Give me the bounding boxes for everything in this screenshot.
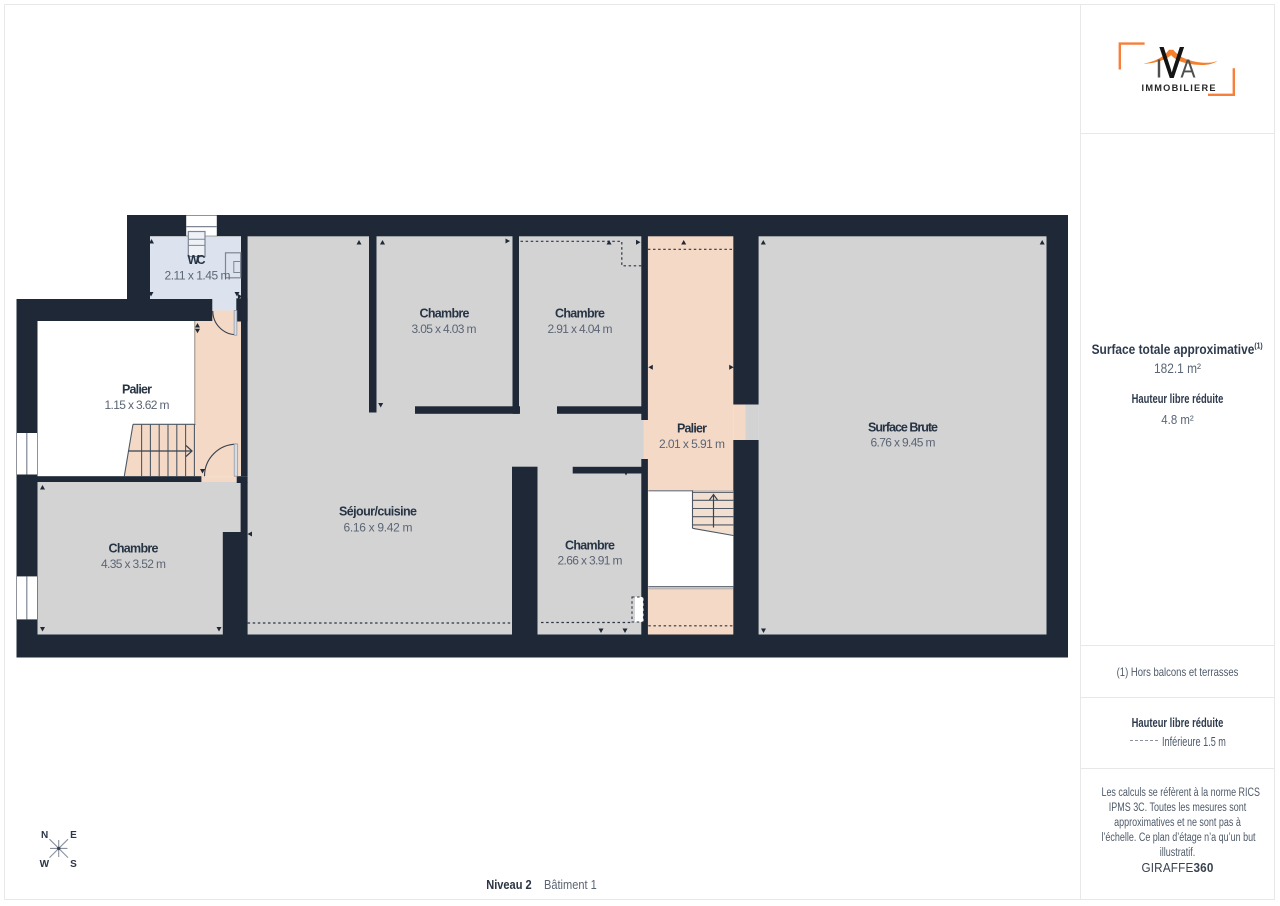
svg-text:Chambre: Chambre (565, 539, 615, 553)
svg-text:Chambre: Chambre (109, 542, 159, 556)
svg-text:Surface Brute: Surface Brute (868, 421, 938, 435)
svg-text:S: S (70, 859, 77, 870)
svg-text:2.01 x 5.91 m: 2.01 x 5.91 m (659, 437, 725, 451)
svg-text:WC: WC (188, 253, 206, 267)
svg-text:6.76 x 9.45 m: 6.76 x 9.45 m (871, 436, 936, 450)
svg-text:1.15 x 3.62 m: 1.15 x 3.62 m (105, 398, 170, 412)
svg-text:Séjour/cuisine: Séjour/cuisine (339, 505, 417, 519)
svg-text:6.16 x 9.42 m: 6.16 x 9.42 m (344, 521, 413, 535)
svg-text:2.11 x 1.45 m: 2.11 x 1.45 m (165, 269, 231, 283)
svg-text:Chambre: Chambre (555, 307, 605, 321)
svg-text:A: A (1181, 53, 1197, 83)
svg-text:3.05 x 4.03 m: 3.05 x 4.03 m (412, 322, 477, 336)
svg-text:4.35 x 3.52 m: 4.35 x 3.52 m (101, 557, 166, 571)
svg-text:N: N (41, 830, 48, 841)
svg-text:Palier: Palier (677, 422, 707, 436)
svg-text:2.66 x 3.91 m: 2.66 x 3.91 m (558, 554, 623, 568)
svg-text:E: E (70, 830, 77, 841)
svg-text:W: W (40, 859, 50, 870)
svg-text:Palier: Palier (122, 383, 152, 397)
svg-text:Chambre: Chambre (420, 307, 470, 321)
svg-text:2.91 x 4.04 m: 2.91 x 4.04 m (548, 322, 613, 336)
